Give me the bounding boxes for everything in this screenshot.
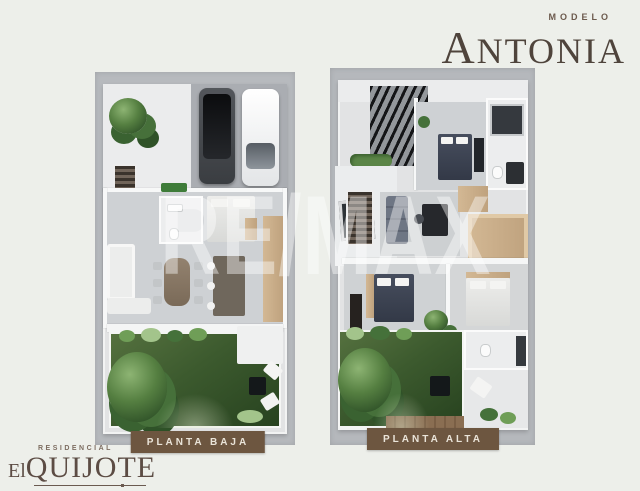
logo-name: QUIJOTE	[26, 451, 156, 484]
planter	[161, 183, 187, 192]
logo-prefix: El	[8, 460, 26, 482]
desk	[422, 204, 448, 236]
shrub	[480, 408, 498, 421]
pillow	[490, 281, 506, 289]
tv-cabinet	[474, 138, 484, 172]
shower	[490, 104, 524, 136]
dining-area	[151, 254, 205, 312]
model-title-block: MODELO ANTONIA	[441, 12, 626, 71]
floorplan-planta-alta	[330, 68, 535, 445]
shower	[516, 336, 526, 366]
outdoor-mat	[249, 377, 266, 395]
suv-dark	[199, 88, 235, 184]
bedroom-1-bed	[438, 134, 472, 180]
bathroom-1	[486, 98, 528, 190]
outdoor-mat	[430, 376, 450, 396]
shrub	[500, 412, 516, 424]
sofa-chaise	[107, 298, 151, 314]
front-shrub	[109, 98, 147, 134]
dining-table	[164, 258, 190, 306]
pillow	[470, 281, 486, 289]
garden-tree	[338, 348, 392, 412]
pillow	[377, 278, 391, 286]
planta-baja-badge: PLANTA BAJA	[131, 431, 265, 453]
headboard	[366, 274, 374, 318]
toilet	[480, 344, 491, 357]
model-name: ANTONIA	[441, 25, 626, 71]
pillow	[211, 199, 228, 207]
shrub	[189, 328, 207, 341]
modelo-label: MODELO	[441, 12, 612, 22]
kitchen-counter	[263, 216, 283, 322]
kitchen-island	[213, 256, 245, 316]
pillow	[441, 137, 453, 144]
dining-chairs	[153, 262, 162, 270]
pillow	[456, 137, 468, 144]
desk-chair	[414, 214, 424, 224]
marketing-sheet: MODELO ANTONIA	[0, 0, 640, 491]
toilet	[169, 228, 179, 240]
patio	[237, 326, 283, 364]
wall	[283, 188, 287, 328]
logo-name-line: ElQUIJOTE	[8, 453, 156, 483]
shrub	[141, 328, 161, 342]
car-windshield	[203, 94, 231, 159]
bar-stools	[207, 262, 215, 270]
toilet	[492, 166, 503, 179]
pillow	[233, 199, 250, 207]
garden-tree	[107, 352, 167, 422]
wood-deck	[386, 416, 470, 428]
logo-underline-dot	[121, 484, 124, 487]
staircase	[346, 190, 374, 246]
vanity	[506, 162, 524, 184]
potted-plant	[418, 116, 430, 128]
shrub	[119, 330, 135, 342]
bathroom	[159, 196, 203, 244]
car-white	[242, 89, 279, 186]
shrub	[237, 410, 263, 423]
planta-alta-badge: PLANTA ALTA	[367, 428, 499, 450]
indoor-plants	[424, 310, 448, 332]
shrub	[167, 330, 183, 342]
shrub	[346, 327, 364, 340]
garden	[109, 332, 281, 428]
pillow	[395, 278, 409, 286]
car-windshield	[246, 143, 275, 168]
shrub	[396, 328, 412, 340]
bedroom-2-bed	[374, 274, 414, 322]
wardrobe	[458, 186, 488, 212]
bedroom-3-bed	[466, 278, 510, 326]
closet	[245, 218, 257, 240]
sink	[167, 204, 183, 212]
floorplan-planta-baja	[95, 72, 295, 445]
side-walkway	[464, 370, 528, 428]
logo-underline	[34, 485, 146, 486]
bathroom-2	[464, 330, 528, 370]
shrub	[370, 326, 390, 340]
tv-room-sofa	[386, 196, 408, 244]
garden-void	[338, 330, 464, 428]
sofa	[107, 244, 135, 300]
